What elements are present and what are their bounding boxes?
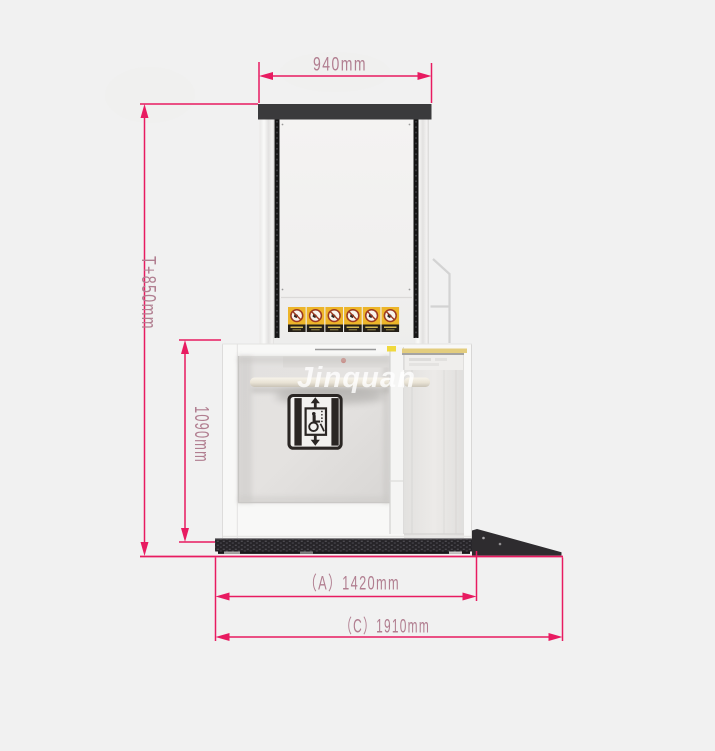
svg-text:Jinquan: Jinquan [297,362,415,394]
svg-text:1090mm: 1090mm [190,406,213,463]
svg-text:T+850mm: T+850mm [137,256,160,330]
svg-text:（C）1910mm: （C）1910mm [340,616,430,638]
svg-text:940mm: 940mm [313,55,367,76]
svg-text:（A）1420mm: （A）1420mm [304,573,400,595]
